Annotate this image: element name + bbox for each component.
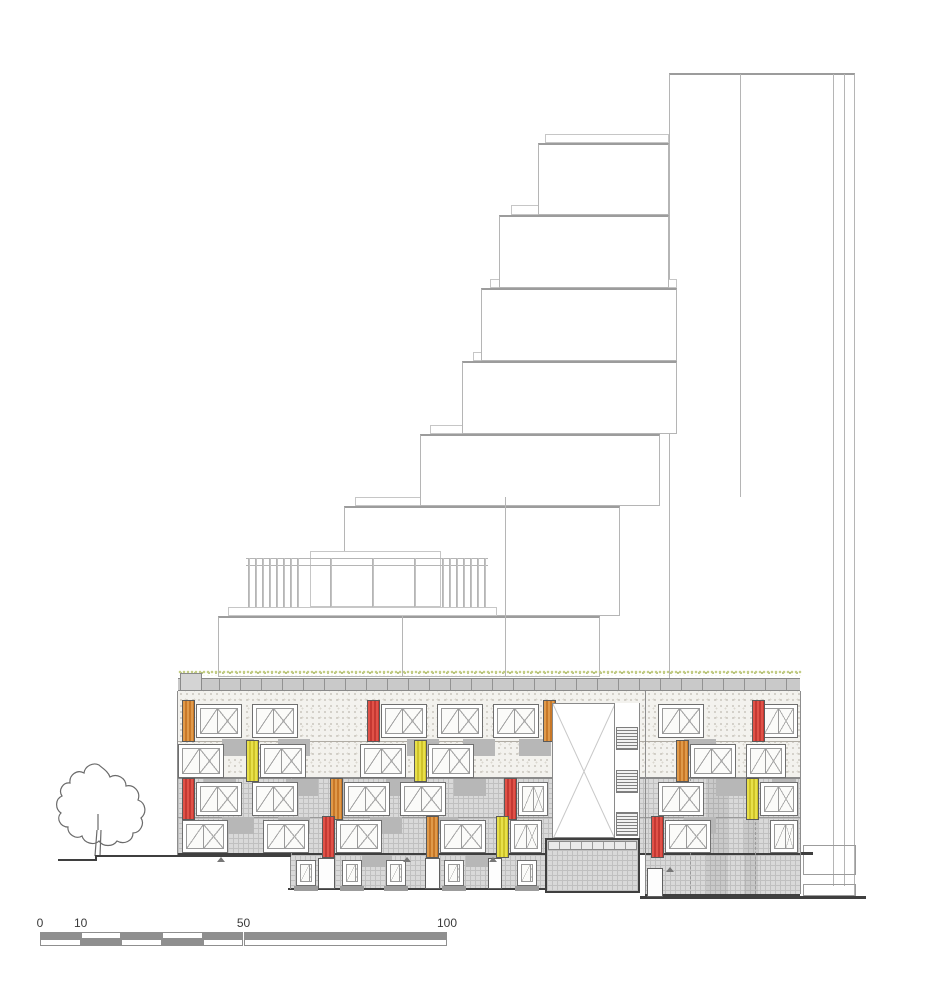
stair-louver-vent xyxy=(616,812,638,836)
window-pane-left xyxy=(444,824,462,849)
window xyxy=(336,820,382,853)
window-pane-right xyxy=(785,824,794,849)
door xyxy=(318,858,335,889)
accent-panel-orange xyxy=(330,778,343,820)
window xyxy=(770,820,798,853)
window-pane-right xyxy=(357,824,378,849)
accent-panel-red xyxy=(322,816,335,858)
scale-label-0: 0 xyxy=(37,916,44,930)
entry-marker-icon xyxy=(403,857,411,862)
window xyxy=(746,744,786,778)
window-pane-right xyxy=(273,786,294,812)
window xyxy=(263,820,309,853)
scale-label-10: 10 xyxy=(74,916,87,930)
spandrel-panel xyxy=(716,779,748,796)
window xyxy=(760,704,798,738)
window xyxy=(444,860,464,886)
scale-bar-segment-top xyxy=(121,932,162,939)
stair-louver-vent xyxy=(616,727,638,750)
window xyxy=(510,820,542,853)
window-pane-left xyxy=(441,708,459,734)
accent-panel-yellow xyxy=(746,778,759,820)
window-pane-left xyxy=(764,786,779,812)
window-pane-left xyxy=(267,824,285,849)
accent-panel-red xyxy=(651,816,664,858)
window-sill xyxy=(294,886,318,891)
window-pane-right xyxy=(679,786,700,812)
scale-bar-segment-top xyxy=(162,932,203,939)
accent-panel-orange xyxy=(676,740,689,782)
window-pane-left xyxy=(182,748,200,774)
window xyxy=(342,860,362,886)
window xyxy=(440,820,486,853)
window-pane-left xyxy=(264,748,282,774)
scale-bar-segment-top xyxy=(81,932,122,939)
window xyxy=(252,782,298,816)
scale-bar-segment-bottom xyxy=(244,939,448,946)
window-pane-right xyxy=(217,786,238,812)
scale-label-100: 100 xyxy=(437,916,457,930)
window-pane-left xyxy=(404,786,422,812)
window-pane-right xyxy=(526,824,538,849)
window-pane-right xyxy=(402,708,423,734)
window xyxy=(690,744,736,778)
roof-parapet-block xyxy=(180,673,202,691)
green-roof-vegetation xyxy=(178,670,802,676)
scale-bar-segment-bottom xyxy=(40,939,81,946)
window-pane-right xyxy=(533,786,544,812)
window-pane-left xyxy=(256,786,274,812)
window-pane-right xyxy=(399,864,402,882)
window-pane-right xyxy=(778,786,794,812)
door xyxy=(488,858,502,889)
window-pane-right xyxy=(309,864,312,882)
window-pane-left xyxy=(200,786,218,812)
window-pane-left xyxy=(385,708,403,734)
scale-bar-segment-bottom xyxy=(162,939,203,946)
entry-slab-band xyxy=(548,841,637,850)
window-pane-right xyxy=(355,864,358,882)
scale-bar-segment-top xyxy=(40,932,81,939)
window xyxy=(296,860,316,886)
window-pane-right xyxy=(365,786,386,812)
accent-panel-red xyxy=(367,700,380,742)
scale-bar-segment-bottom xyxy=(121,939,162,946)
window-pane-left xyxy=(348,786,366,812)
window xyxy=(760,782,798,816)
scale-bar-segment-bottom xyxy=(81,939,122,946)
window xyxy=(518,782,548,816)
accent-panel-red xyxy=(182,778,195,820)
window xyxy=(658,704,704,738)
accent-panel-yellow xyxy=(246,740,259,782)
scale-bar-segment-top xyxy=(244,932,448,939)
window-sill xyxy=(340,886,364,891)
window-sill xyxy=(515,886,539,891)
window-pane-right xyxy=(686,824,707,849)
window xyxy=(360,744,406,778)
window-pane-left xyxy=(256,708,274,734)
window-pane-right xyxy=(203,824,224,849)
accent-panel-red xyxy=(752,700,765,742)
entry-marker-icon xyxy=(489,857,497,862)
window-pane-right xyxy=(199,748,220,774)
window xyxy=(517,860,537,886)
window-pane-right xyxy=(765,748,782,774)
window xyxy=(428,744,474,778)
accent-panel-orange xyxy=(182,700,195,742)
accent-panel-yellow xyxy=(414,740,427,782)
accent-panel-red xyxy=(504,778,517,820)
spandrel-panel xyxy=(454,779,486,796)
building-facade xyxy=(0,0,934,1000)
stair-louver-vent xyxy=(616,770,638,793)
window-pane-left xyxy=(200,708,218,734)
window-pane-right xyxy=(281,748,302,774)
window xyxy=(182,820,228,853)
door xyxy=(425,858,440,889)
window-pane-left xyxy=(662,708,680,734)
window-pane-right xyxy=(217,708,238,734)
entry-marker-icon xyxy=(217,857,225,862)
door xyxy=(647,868,663,897)
accent-panel-orange xyxy=(426,816,439,858)
window-pane-right xyxy=(461,824,482,849)
window xyxy=(196,782,242,816)
window xyxy=(381,704,427,738)
window-pane-right xyxy=(449,748,470,774)
window xyxy=(437,704,483,738)
window xyxy=(493,704,539,738)
window-pane-right xyxy=(381,748,402,774)
window-pane-left xyxy=(662,786,680,812)
window-pane-left xyxy=(750,748,766,774)
window-pane-right xyxy=(273,708,294,734)
window-pane-right xyxy=(458,708,479,734)
window xyxy=(386,860,406,886)
accent-panel-yellow xyxy=(496,816,509,858)
window-pane-left xyxy=(669,824,687,849)
window-pane-right xyxy=(530,864,533,882)
window xyxy=(252,704,298,738)
window-pane-right xyxy=(679,708,700,734)
window xyxy=(260,744,306,778)
window-pane-left xyxy=(364,748,382,774)
window-pane-right xyxy=(457,864,460,882)
scale-bar-segment-bottom xyxy=(203,939,244,946)
elevation-drawing: 0 10 50 100 xyxy=(0,0,934,1000)
window-pane-right xyxy=(778,708,794,734)
roof-parapet-band xyxy=(178,678,800,691)
window xyxy=(658,782,704,816)
window xyxy=(344,782,390,816)
window-pane-right xyxy=(514,708,535,734)
window xyxy=(665,820,711,853)
window-pane-right xyxy=(711,748,732,774)
facade-edge-line xyxy=(800,691,801,894)
window-pane-left xyxy=(694,748,712,774)
scale-bar-segment-top xyxy=(203,932,244,939)
floor-line xyxy=(645,894,800,896)
window xyxy=(178,744,224,778)
window-pane-right xyxy=(284,824,305,849)
window-sill xyxy=(442,886,466,891)
scale-label-50: 50 xyxy=(237,916,250,930)
window-pane-left xyxy=(186,824,204,849)
window-pane-left xyxy=(764,708,779,734)
entry-marker-icon xyxy=(666,867,674,872)
window xyxy=(400,782,446,816)
window-pane-right xyxy=(421,786,442,812)
window-pane-left xyxy=(497,708,515,734)
window-pane-left xyxy=(432,748,450,774)
facade-edge-line xyxy=(290,855,291,889)
window xyxy=(196,704,242,738)
window-pane-left xyxy=(340,824,358,849)
window-sill xyxy=(384,886,408,891)
facade-edge-line xyxy=(645,691,646,894)
